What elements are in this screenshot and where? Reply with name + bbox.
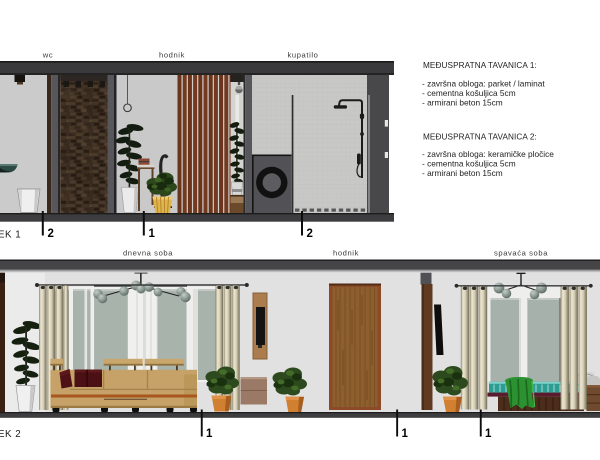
svg-text:kupatilo: kupatilo: [288, 51, 319, 60]
svg-text:hodnik: hodnik: [333, 249, 359, 258]
svg-text:wc: wc: [42, 51, 53, 60]
svg-text:1: 1: [402, 428, 409, 440]
svg-text:- završna obloga: parket / lam: - završna obloga: parket / laminat: [422, 79, 545, 89]
svg-text:1: 1: [149, 228, 156, 240]
svg-text:EK 2: EK 2: [0, 429, 21, 440]
svg-text:EK 1: EK 1: [0, 230, 21, 241]
svg-text:- završna obloga: keramičke pl: - završna obloga: keramičke pločice: [422, 149, 554, 159]
svg-text:dnevna soba: dnevna soba: [123, 249, 173, 258]
svg-text:spavaća soba: spavaća soba: [494, 249, 548, 258]
svg-text:- armirani beton 15cm: - armirani beton 15cm: [422, 168, 503, 178]
svg-text:1: 1: [206, 428, 213, 440]
svg-text:- cementna košuljica 5cm: - cementna košuljica 5cm: [422, 88, 516, 98]
svg-text:- cementna košuljica 5cm: - cementna košuljica 5cm: [422, 159, 516, 169]
svg-text:MEĐUSPRATNA TAVANICA 1:: MEĐUSPRATNA TAVANICA 1:: [423, 61, 537, 70]
svg-text:2: 2: [48, 228, 54, 240]
svg-text:2: 2: [307, 228, 313, 240]
svg-text:1: 1: [485, 428, 492, 440]
svg-text:MEĐUSPRATNA TAVANICA 2:: MEĐUSPRATNA TAVANICA 2:: [423, 133, 537, 142]
svg-text:hodnik: hodnik: [159, 51, 185, 60]
svg-text:- armirani beton 15cm: - armirani beton 15cm: [422, 98, 503, 108]
